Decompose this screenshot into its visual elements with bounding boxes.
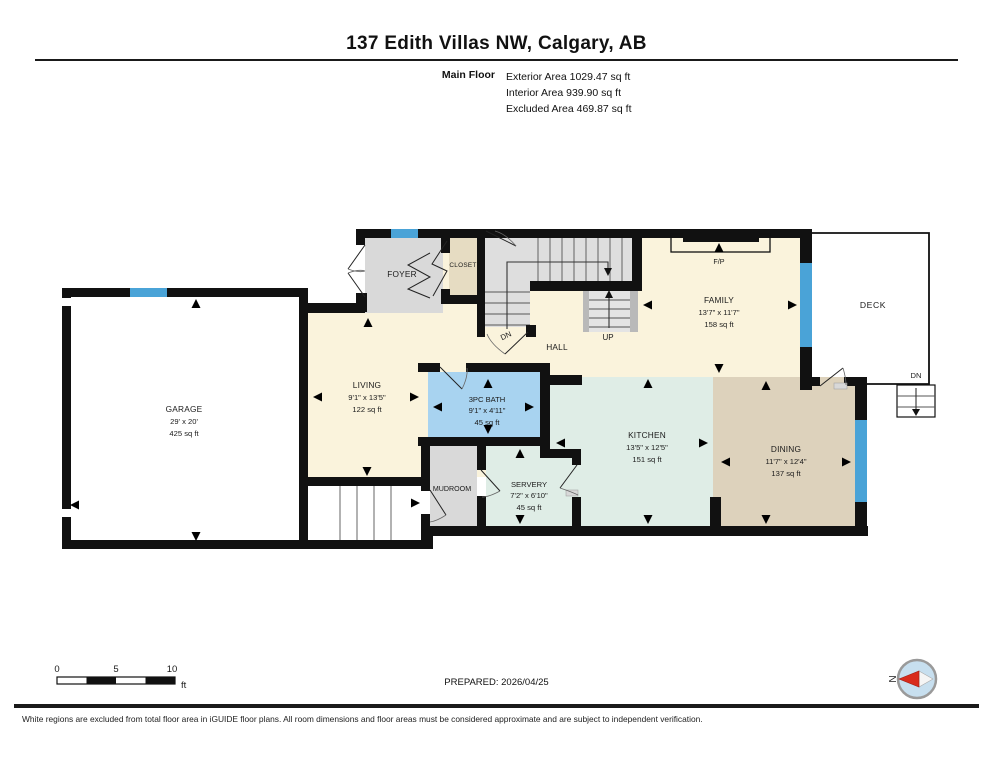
kitchen-dims: 13'5" x 12'5"	[626, 443, 668, 452]
servery-dims: 7'2" x 6'10"	[510, 491, 548, 500]
deck-stairs	[897, 385, 935, 417]
up-stair-stringer-left	[583, 291, 589, 332]
dining-area: 137 sq ft	[771, 469, 801, 478]
footer-divider	[14, 704, 979, 708]
living-dims: 9'1" x 13'5"	[348, 393, 386, 402]
fireplace-box	[683, 229, 759, 242]
bath-label: 3PC BATH	[469, 395, 506, 404]
hall-label: HALL	[546, 342, 568, 352]
bath-floor	[428, 372, 540, 437]
scale-tick-10: 10	[167, 664, 178, 675]
deck-label: DECK	[860, 300, 886, 310]
up-stairs-label: UP	[602, 333, 613, 342]
dining-label: DINING	[771, 444, 801, 454]
dining-window	[855, 420, 867, 502]
closet-label: CLOSET	[449, 262, 476, 269]
garage-label: GARAGE	[166, 404, 203, 414]
bath-dims: 9'1" x 4'11"	[469, 406, 506, 415]
dining-dims: 11'7" x 12'4"	[765, 457, 806, 466]
family-area: 158 sq ft	[704, 320, 734, 329]
living-label: LIVING	[353, 380, 381, 390]
disclaimer-text: White regions are excluded from total fl…	[22, 714, 972, 724]
garage-steps	[340, 486, 391, 540]
scale-tick-0: 0	[54, 664, 59, 675]
servery-area: 45 sq ft	[517, 503, 543, 512]
garage-window	[130, 288, 167, 297]
garage-dims: 29' x 20'	[170, 417, 198, 426]
entry-double-door	[348, 245, 365, 297]
bath-area: 45 sq ft	[475, 418, 501, 427]
living-area: 122 sq ft	[352, 405, 382, 414]
up-stair-stringer-right	[630, 291, 638, 332]
foyer-window	[391, 229, 418, 238]
servery-label: SERVERY	[511, 480, 547, 489]
fireplace-label: F/P	[713, 257, 724, 266]
kitchen-label: KITCHEN	[628, 430, 666, 440]
floorplan-page: 137 Edith Villas NW, Calgary, AB Main Fl…	[0, 0, 993, 768]
family-label: FAMILY	[704, 295, 734, 305]
mudroom-label: MUDROOM	[433, 485, 471, 493]
garage-area: 425 sq ft	[169, 429, 199, 438]
prepared-date: PREPARED: 2026/04/25	[0, 677, 993, 688]
foyer-label: FOYER	[387, 269, 417, 279]
family-window	[800, 263, 812, 347]
scale-tick-5: 5	[113, 664, 118, 675]
floorplan-drawing: GARAGE 29' x 20' 425 sq ft LIVING 9'1" x…	[0, 0, 993, 768]
family-dims: 13'7" x 11'7"	[698, 308, 739, 317]
kitchen-area: 151 sq ft	[632, 455, 662, 464]
deck-down-label: DN	[911, 371, 922, 380]
